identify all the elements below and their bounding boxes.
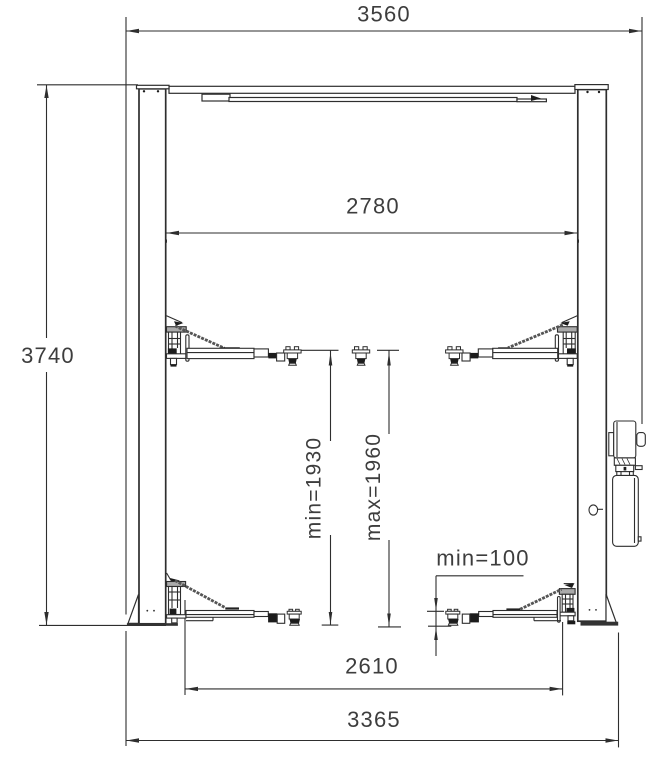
svg-text:3560: 3560 [357,1,411,26]
svg-text:max=1960: max=1960 [362,433,385,541]
svg-text:2610: 2610 [345,654,399,679]
svg-text:3740: 3740 [21,343,75,368]
svg-text:2780: 2780 [346,194,400,219]
svg-text:min=1930: min=1930 [303,437,326,539]
svg-text:3365: 3365 [347,707,401,732]
svg-text:min=100: min=100 [436,546,529,571]
